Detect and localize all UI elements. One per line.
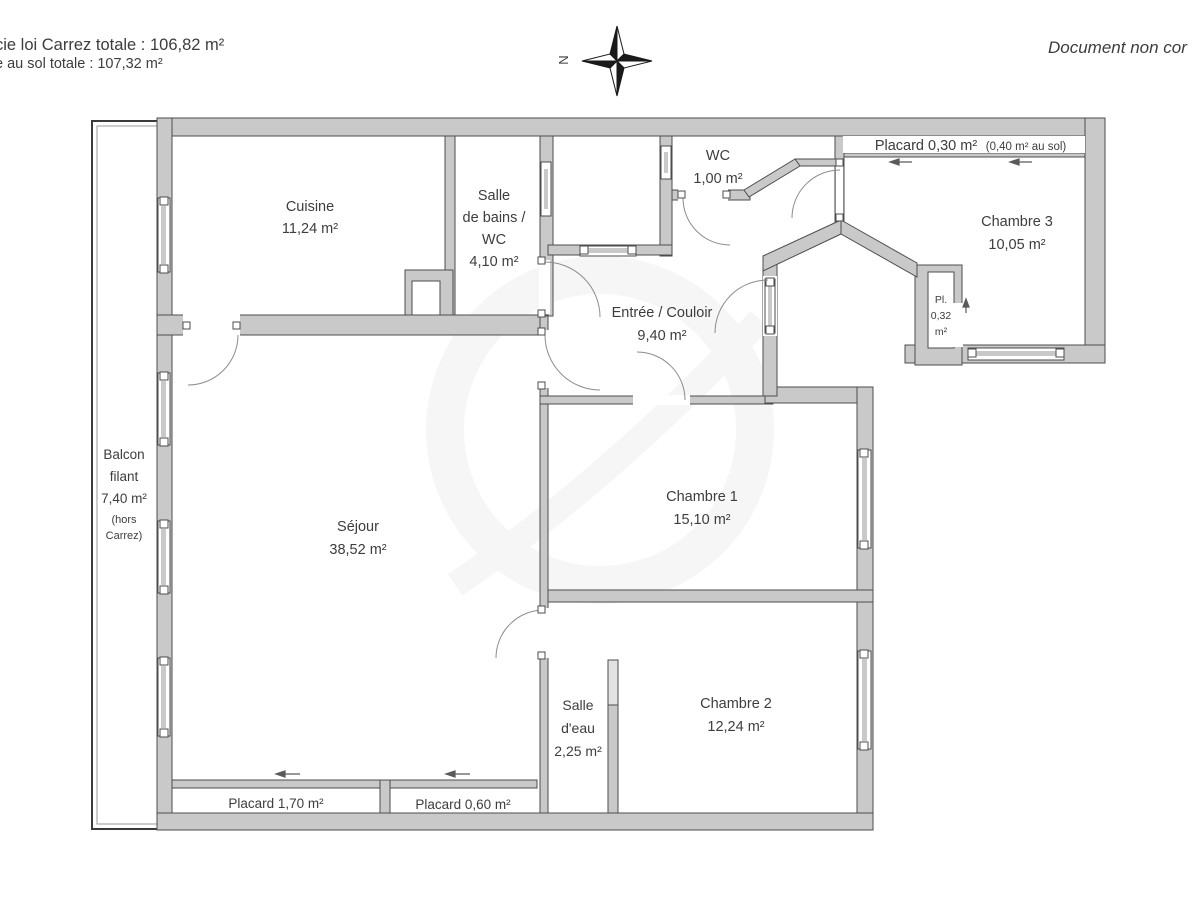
room-label-salle-eau-1: Salle: [562, 697, 593, 713]
label-placard-haut-note: (0,40 m² au sol): [986, 141, 1067, 153]
room-area-chambre1: 15,10 m²: [673, 512, 730, 528]
compass-north-label: N: [556, 55, 571, 64]
label-pl-2: 0,32: [931, 310, 952, 322]
room-label-entree: Entrée / Couloir: [612, 305, 713, 321]
room-label-salle-eau-2: d'eau: [561, 720, 595, 736]
room-label-sejour: Séjour: [337, 519, 379, 535]
room-area-sdb: 4,10 m²: [469, 254, 518, 270]
floor-plan: cie loi Carrez totale : 106,82 m² e au s…: [0, 0, 1200, 900]
room-label-balcon-1: Balcon: [103, 447, 144, 462]
header: cie loi Carrez totale : 106,82 m² e au s…: [0, 36, 1188, 72]
floor-plan-page: cie loi Carrez totale : 106,82 m² e au s…: [0, 0, 1200, 900]
label-pl-3: m²: [935, 326, 948, 338]
room-area-entree: 9,40 m²: [637, 328, 686, 344]
room-label-sdb-1: Salle: [478, 188, 510, 204]
compass-rose: N: [556, 26, 652, 96]
label-placard-bas2: Placard 0,60 m²: [415, 797, 511, 812]
room-area-cuisine: 11,24 m²: [282, 221, 338, 237]
room-area-wc: 1,00 m²: [693, 171, 742, 187]
room-label-balcon-2: filant: [110, 469, 139, 484]
room-label-chambre2: Chambre 2: [700, 696, 772, 712]
room-label-balcon-4: (hors: [111, 514, 137, 526]
room-area-salle-eau: 2,25 m²: [554, 743, 602, 759]
label-placard-bas1: Placard 1,70 m²: [228, 796, 324, 811]
room-area-balcon: 7,40 m²: [101, 491, 147, 506]
room-label-sdb-2: de bains /: [463, 210, 527, 226]
room-area-chambre3: 10,05 m²: [988, 237, 1045, 253]
room-area-sejour: 38,52 m²: [329, 542, 386, 558]
surface-carrez-label: cie loi Carrez totale : 106,82 m²: [0, 36, 225, 54]
document-note: Document non cor: [1048, 38, 1188, 57]
room-label-wc: WC: [706, 148, 730, 164]
room-label-chambre3: Chambre 3: [981, 214, 1053, 230]
label-placard-haut: Placard 0,30 m²: [875, 138, 978, 154]
room-label-sdb-3: WC: [482, 232, 506, 248]
room-area-chambre2: 12,24 m²: [707, 719, 764, 735]
room-label-cuisine: Cuisine: [286, 199, 334, 215]
label-pl-1: Pl.: [935, 294, 947, 306]
surface-sol-label: e au sol totale : 107,32 m²: [0, 56, 163, 72]
room-label-chambre1: Chambre 1: [666, 489, 738, 505]
room-label-balcon-5: Carrez): [106, 530, 143, 542]
